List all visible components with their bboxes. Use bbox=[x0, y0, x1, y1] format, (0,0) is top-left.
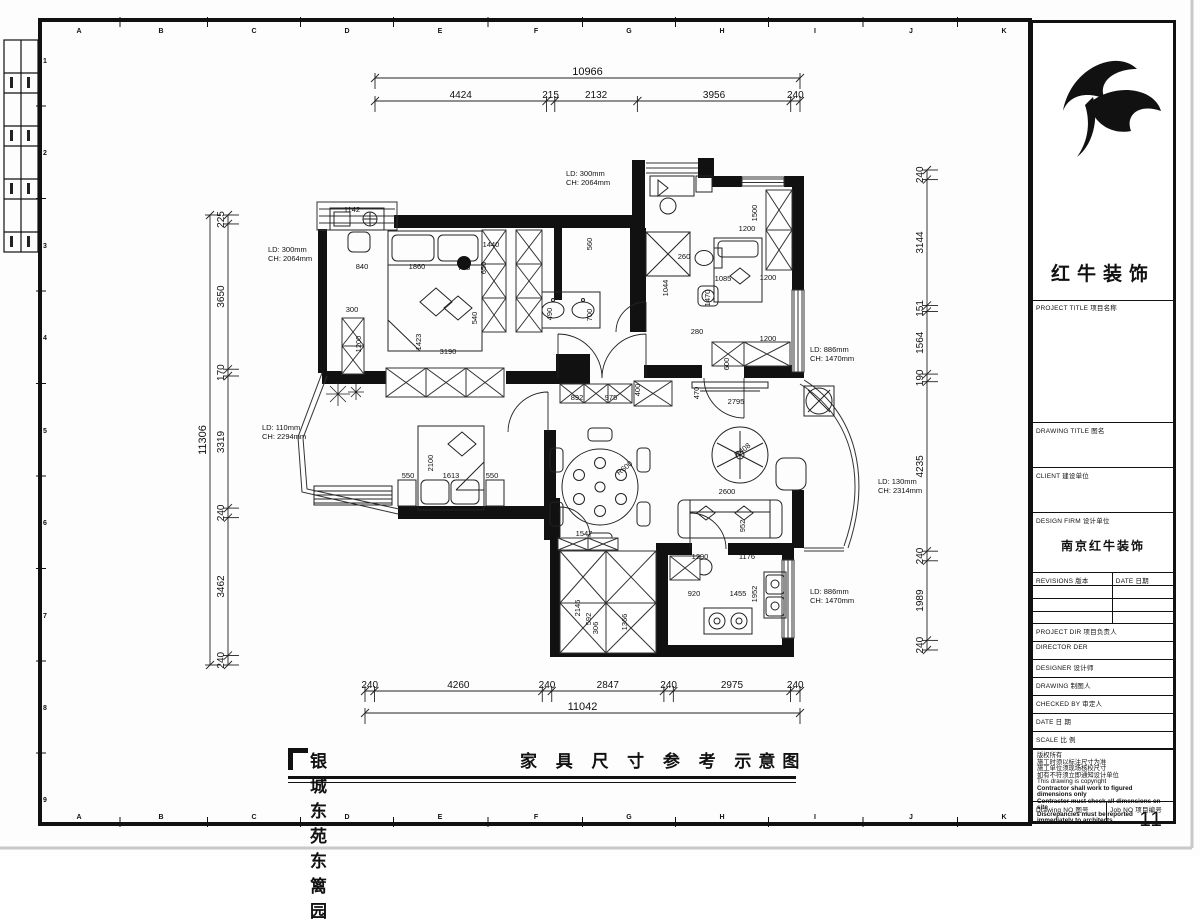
svg-text:225: 225 bbox=[216, 211, 227, 228]
svg-text:306: 306 bbox=[591, 622, 600, 635]
revision-row bbox=[1033, 598, 1173, 611]
svg-text:B: B bbox=[158, 814, 163, 821]
logo-area: 红牛装饰 bbox=[1033, 23, 1173, 301]
svg-text:2795: 2795 bbox=[728, 397, 745, 406]
svg-text:11042: 11042 bbox=[568, 701, 598, 713]
svg-text:J: J bbox=[909, 28, 913, 35]
svg-text:1500: 1500 bbox=[750, 205, 759, 222]
svg-text:560: 560 bbox=[585, 238, 594, 251]
svg-text:F: F bbox=[534, 28, 539, 35]
svg-text:3144: 3144 bbox=[915, 231, 926, 254]
svg-text:D: D bbox=[344, 28, 349, 35]
svg-text:1613: 1613 bbox=[443, 471, 460, 480]
svg-text:1200: 1200 bbox=[760, 273, 777, 282]
svg-text:540: 540 bbox=[470, 312, 479, 325]
field-rev-date: DATE 日期 bbox=[1113, 573, 1173, 585]
svg-text:240: 240 bbox=[216, 651, 227, 668]
svg-text:K: K bbox=[1001, 814, 1006, 821]
field-drawing: DRAWING 制图人 bbox=[1033, 678, 1173, 690]
svg-text:2100: 2100 bbox=[426, 455, 435, 472]
svg-text:300: 300 bbox=[346, 305, 359, 314]
svg-text:R600: R600 bbox=[615, 459, 635, 477]
svg-text:I: I bbox=[814, 28, 816, 35]
svg-text:A: A bbox=[76, 814, 81, 821]
svg-text:C: C bbox=[251, 814, 256, 821]
dining-table bbox=[550, 428, 650, 546]
svg-text:G: G bbox=[626, 28, 632, 35]
svg-text:240: 240 bbox=[915, 166, 926, 183]
dresser bbox=[330, 208, 384, 252]
svg-text:795: 795 bbox=[458, 263, 471, 272]
study-desk bbox=[650, 176, 712, 214]
svg-text:4260: 4260 bbox=[447, 680, 470, 691]
svg-text:190: 190 bbox=[915, 369, 926, 386]
svg-text:3190: 3190 bbox=[440, 347, 457, 356]
svg-text:F: F bbox=[534, 814, 539, 821]
logo-text: 红牛装饰 bbox=[1033, 259, 1173, 286]
floor-plan: 1096644242152132395624024042602402847240… bbox=[0, 0, 1200, 856]
master-bed bbox=[388, 231, 482, 351]
note-line: Contractor shall work to figured dimensi… bbox=[1037, 786, 1169, 799]
svg-text:2847: 2847 bbox=[597, 680, 620, 691]
svg-text:1423: 1423 bbox=[414, 334, 423, 351]
svg-text:1200: 1200 bbox=[739, 224, 756, 233]
second-bed bbox=[398, 426, 504, 510]
svg-text:280: 280 bbox=[691, 327, 704, 336]
svg-text:1455: 1455 bbox=[730, 589, 747, 598]
svg-text:240: 240 bbox=[915, 636, 926, 653]
svg-text:240: 240 bbox=[787, 680, 804, 691]
footer-underline-thin bbox=[288, 782, 796, 783]
svg-text:2146: 2146 bbox=[573, 600, 582, 617]
svg-text:1989: 1989 bbox=[915, 589, 926, 612]
svg-text:LD: 886mm: LD: 886mm bbox=[810, 587, 849, 596]
svg-text:400: 400 bbox=[633, 384, 642, 397]
svg-text:700: 700 bbox=[585, 309, 594, 322]
svg-text:4424: 4424 bbox=[450, 90, 473, 101]
svg-text:B: B bbox=[158, 28, 163, 35]
plant-icon bbox=[326, 382, 364, 406]
svg-text:240: 240 bbox=[915, 547, 926, 564]
svg-text:892: 892 bbox=[571, 393, 584, 402]
svg-text:1564: 1564 bbox=[915, 331, 926, 354]
svg-text:1547: 1547 bbox=[576, 529, 593, 538]
svg-text:2132: 2132 bbox=[585, 90, 608, 101]
footer-underline bbox=[288, 776, 796, 779]
svg-text:6: 6 bbox=[43, 520, 47, 527]
svg-text:9: 9 bbox=[43, 797, 47, 804]
tv-unit bbox=[692, 382, 768, 391]
svg-text:1142: 1142 bbox=[344, 205, 360, 214]
svg-text:CH: 1470mm: CH: 1470mm bbox=[810, 354, 854, 363]
svg-text:1044: 1044 bbox=[661, 280, 670, 297]
svg-text:CH: 2064mm: CH: 2064mm bbox=[566, 178, 610, 187]
svg-text:1176: 1176 bbox=[739, 552, 755, 561]
field-checked-by: CHECKED BY 审定人 bbox=[1033, 696, 1173, 708]
svg-text:600: 600 bbox=[722, 358, 731, 371]
kitchen-stove bbox=[704, 608, 752, 634]
svg-text:260: 260 bbox=[678, 252, 691, 261]
drawing-sheet: 1096644242152132395624024042602402847240… bbox=[0, 0, 1200, 856]
svg-text:151: 151 bbox=[915, 300, 926, 317]
svg-text:240: 240 bbox=[216, 504, 227, 521]
svg-text:1085: 1085 bbox=[715, 274, 732, 283]
field-project-dir: PROJECT DIR 项目负责人 bbox=[1033, 624, 1173, 636]
field-project-title: PROJECT TITLE 项目名称 bbox=[1033, 300, 1173, 312]
field-revisions: REVISIONS 版本 bbox=[1033, 573, 1113, 585]
svg-text:650: 650 bbox=[479, 262, 488, 275]
redbull-logo-icon bbox=[1033, 33, 1173, 233]
job-number-value: 11 bbox=[1139, 808, 1163, 832]
svg-text:240: 240 bbox=[787, 90, 804, 101]
svg-text:LD: 300mm: LD: 300mm bbox=[566, 169, 605, 178]
svg-text:11306: 11306 bbox=[197, 425, 209, 455]
svg-text:1860: 1860 bbox=[409, 262, 426, 271]
svg-text:CH: 2294mm: CH: 2294mm bbox=[262, 432, 306, 441]
svg-text:1290: 1290 bbox=[692, 552, 709, 561]
svg-text:H: H bbox=[719, 814, 724, 821]
field-date: DATE 日 期 bbox=[1033, 714, 1173, 726]
svg-text:2: 2 bbox=[43, 150, 47, 157]
svg-text:1200: 1200 bbox=[760, 334, 777, 343]
field-director: DIRECTOR DER bbox=[1033, 642, 1173, 651]
svg-text:550: 550 bbox=[402, 471, 415, 480]
svg-text:240: 240 bbox=[539, 680, 556, 691]
field-drawing-no: Drawing NO 图号 bbox=[1033, 802, 1107, 821]
svg-text:CH: 2314mm: CH: 2314mm bbox=[878, 486, 922, 495]
svg-text:4: 4 bbox=[43, 335, 47, 342]
svg-text:K: K bbox=[1001, 28, 1006, 35]
svg-text:215: 215 bbox=[542, 90, 559, 101]
svg-text:C: C bbox=[251, 28, 256, 35]
svg-text:I: I bbox=[814, 814, 816, 821]
radiator-bench bbox=[314, 486, 392, 505]
revision-row bbox=[1033, 585, 1173, 598]
svg-text:A: A bbox=[76, 28, 81, 35]
svg-text:240: 240 bbox=[361, 680, 378, 691]
svg-text:920: 920 bbox=[688, 589, 701, 598]
svg-text:CH: 1470mm: CH: 1470mm bbox=[810, 596, 854, 605]
svg-text:2975: 2975 bbox=[721, 680, 744, 691]
svg-text:7: 7 bbox=[43, 613, 47, 620]
svg-text:840: 840 bbox=[356, 262, 369, 271]
svg-text:3650: 3650 bbox=[216, 285, 227, 308]
svg-text:1366: 1366 bbox=[620, 614, 629, 631]
field-designer: DESIGNER 设计师 bbox=[1033, 660, 1173, 672]
svg-text:2600: 2600 bbox=[719, 487, 736, 496]
svg-text:1440: 1440 bbox=[483, 240, 500, 249]
field-client: CLIENT 建设单位 bbox=[1033, 468, 1173, 480]
svg-text:5: 5 bbox=[43, 428, 47, 435]
revision-row bbox=[1033, 611, 1173, 624]
border-grid-refs: AABBCCDDEEFFGGHHIIJJKK123456789 bbox=[36, 17, 1007, 827]
svg-text:8: 8 bbox=[43, 705, 47, 712]
svg-text:10966: 10966 bbox=[572, 66, 603, 78]
svg-text:LD: 300mm: LD: 300mm bbox=[268, 245, 307, 254]
svg-text:CH: 2064mm: CH: 2064mm bbox=[268, 254, 312, 263]
svg-text:LD: 130mm: LD: 130mm bbox=[878, 477, 917, 486]
sofa bbox=[678, 500, 782, 538]
svg-text:LD: 886mm: LD: 886mm bbox=[810, 345, 849, 354]
svg-text:J: J bbox=[909, 814, 913, 821]
svg-text:LD: 110mm: LD: 110mm bbox=[262, 423, 300, 432]
svg-text:975: 975 bbox=[605, 393, 618, 402]
svg-text:3: 3 bbox=[43, 243, 47, 250]
svg-text:D: D bbox=[344, 814, 349, 821]
corner-mark-icon bbox=[288, 748, 308, 770]
svg-text:G: G bbox=[626, 814, 632, 821]
svg-text:1952: 1952 bbox=[750, 586, 759, 603]
fold-table bbox=[4, 40, 38, 252]
svg-text:240: 240 bbox=[660, 680, 677, 691]
footer-project-name: 银城东苑东篱园 bbox=[310, 747, 328, 922]
svg-text:E: E bbox=[438, 814, 443, 821]
svg-text:1470: 1470 bbox=[703, 290, 712, 307]
svg-text:3319: 3319 bbox=[216, 430, 227, 453]
field-scale: SCALE 比 例 bbox=[1033, 732, 1173, 744]
field-drawing-title: DRAWING TITLE 图名 bbox=[1033, 423, 1173, 435]
sheet-frame bbox=[0, 0, 1192, 848]
title-block: 红牛装饰 PROJECT TITLE 项目名称 DRAWING TITLE 图名… bbox=[1030, 20, 1176, 824]
svg-text:E: E bbox=[438, 28, 443, 35]
svg-text:4235: 4235 bbox=[915, 455, 926, 478]
svg-text:550: 550 bbox=[486, 471, 499, 480]
svg-text:1: 1 bbox=[43, 58, 47, 65]
wardrobe-cabinets bbox=[342, 190, 792, 653]
footer-drawing-name: 家 具 尺 寸 参 考 示意图 bbox=[520, 747, 806, 772]
design-firm-value: 南京红牛装饰 bbox=[1033, 537, 1173, 554]
svg-text:952: 952 bbox=[738, 520, 747, 533]
svg-text:170: 170 bbox=[216, 364, 227, 381]
svg-text:H: H bbox=[719, 28, 724, 35]
armchair bbox=[776, 458, 806, 490]
svg-text:490: 490 bbox=[545, 308, 554, 321]
field-design-firm: DESIGN FIRM 设计单位 bbox=[1033, 513, 1173, 525]
svg-text:470: 470 bbox=[692, 387, 701, 400]
svg-text:3462: 3462 bbox=[216, 575, 227, 598]
svg-text:3956: 3956 bbox=[703, 90, 726, 101]
svg-text:1200: 1200 bbox=[354, 336, 363, 353]
